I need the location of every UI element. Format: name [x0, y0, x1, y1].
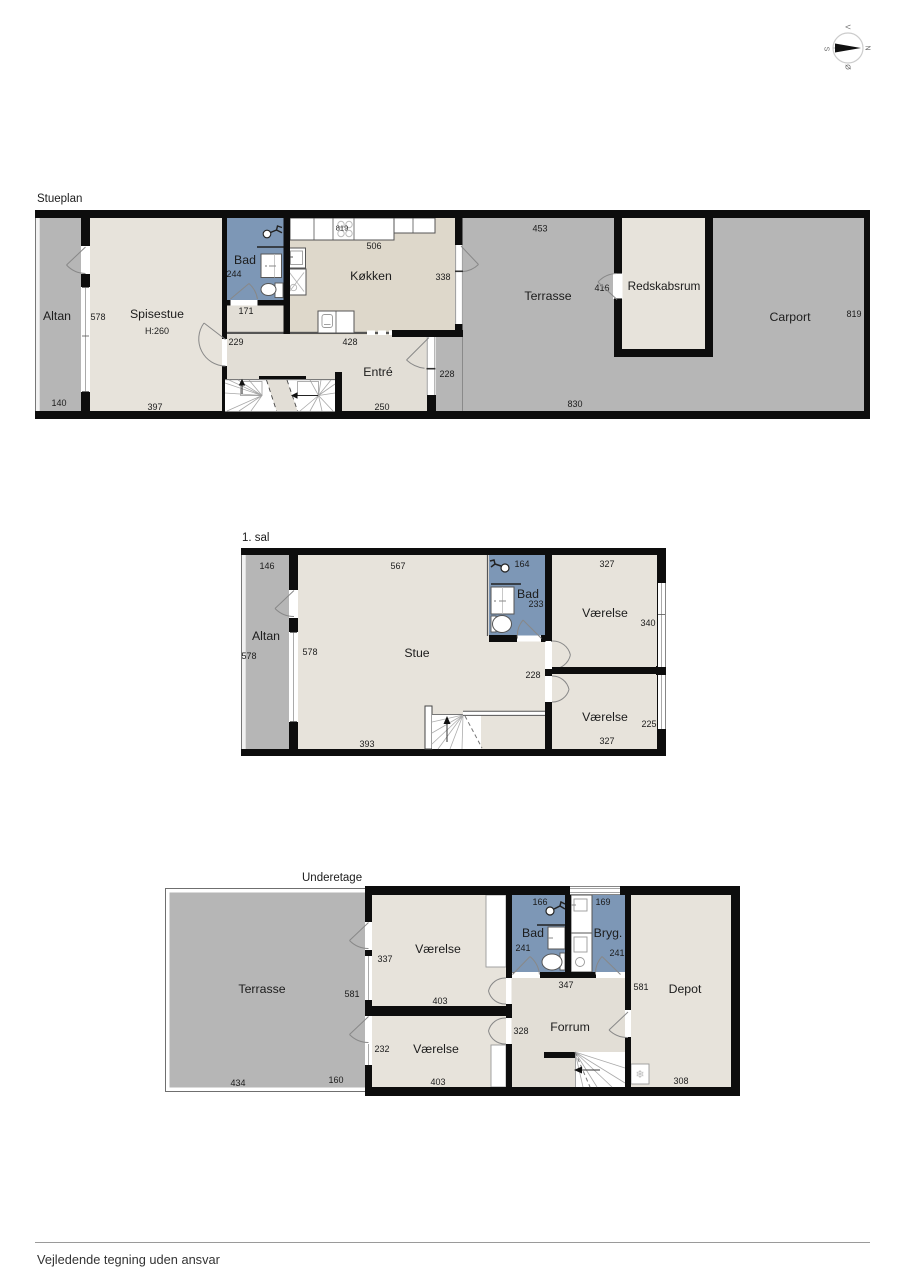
svg-text:393: 393: [359, 739, 374, 749]
svg-text:Bad: Bad: [522, 926, 544, 940]
svg-text:169: 169: [595, 897, 610, 907]
svg-text:146: 146: [259, 561, 274, 571]
svg-text:Depot: Depot: [669, 982, 702, 996]
svg-text:140: 140: [51, 398, 66, 408]
svg-text:N: N: [864, 45, 871, 50]
svg-text:228: 228: [525, 670, 540, 680]
svg-text:327: 327: [599, 559, 614, 569]
svg-text:Værelse: Værelse: [582, 606, 628, 620]
svg-text:171: 171: [238, 306, 253, 316]
svg-text:228: 228: [439, 369, 454, 379]
svg-text:S: S: [823, 47, 830, 52]
svg-text:Stue: Stue: [404, 646, 429, 660]
svg-text:Værelse: Værelse: [413, 1042, 459, 1056]
svg-text:578: 578: [90, 312, 105, 322]
svg-text:403: 403: [432, 996, 447, 1006]
svg-text:V: V: [844, 25, 851, 30]
svg-text:Ø: Ø: [844, 64, 851, 70]
svg-text:Terrasse: Terrasse: [238, 982, 285, 996]
svg-text:241: 241: [609, 948, 624, 958]
svg-text:397: 397: [147, 402, 162, 412]
svg-text:830: 830: [567, 399, 582, 409]
svg-text:H:260: H:260: [145, 326, 169, 336]
svg-text:166: 166: [532, 897, 547, 907]
svg-text:Spisestue: Spisestue: [130, 307, 184, 321]
svg-text:Entré: Entré: [363, 365, 393, 379]
svg-text:581: 581: [633, 982, 648, 992]
svg-text:453: 453: [532, 224, 547, 234]
svg-text:Altan: Altan: [43, 309, 71, 323]
svg-text:232: 232: [374, 1044, 389, 1054]
svg-text:578: 578: [241, 651, 256, 661]
svg-text:225: 225: [641, 719, 656, 729]
svg-text:229: 229: [228, 337, 243, 347]
svg-text:428: 428: [342, 337, 357, 347]
svg-text:340: 340: [640, 618, 655, 628]
svg-text:Altan: Altan: [252, 629, 280, 643]
svg-text:Stueplan: Stueplan: [37, 193, 82, 205]
svg-text:Køkken: Køkken: [350, 269, 392, 283]
svg-text:Redskabsrum: Redskabsrum: [628, 279, 701, 293]
svg-text:819: 819: [336, 224, 349, 233]
svg-text:Carport: Carport: [769, 310, 811, 324]
svg-text:Værelse: Værelse: [415, 942, 461, 956]
svg-text:819: 819: [846, 309, 861, 319]
svg-text:241: 241: [515, 943, 530, 953]
svg-text:244: 244: [226, 269, 241, 279]
svg-text:Terrasse: Terrasse: [524, 289, 571, 303]
svg-text:578: 578: [302, 647, 317, 657]
svg-text:250: 250: [374, 402, 389, 412]
svg-text:567: 567: [390, 561, 405, 571]
svg-text:308: 308: [673, 1076, 688, 1086]
svg-text:434: 434: [230, 1078, 245, 1088]
svg-text:347: 347: [558, 980, 573, 990]
svg-text:581: 581: [344, 989, 359, 999]
svg-text:1. sal: 1. sal: [242, 532, 270, 544]
svg-text:❄: ❄: [635, 1069, 644, 1081]
svg-text:Værelse: Værelse: [582, 710, 628, 724]
svg-text:338: 338: [435, 272, 450, 282]
svg-text:160: 160: [328, 1075, 343, 1085]
svg-text:Bad: Bad: [234, 253, 256, 267]
svg-text:506: 506: [366, 241, 381, 251]
svg-text:233: 233: [528, 599, 543, 609]
svg-text:Bryg.: Bryg.: [594, 926, 623, 940]
svg-text:403: 403: [430, 1077, 445, 1087]
svg-text:Underetage: Underetage: [302, 872, 362, 884]
svg-text:164: 164: [514, 559, 529, 569]
svg-text:Forrum: Forrum: [550, 1020, 590, 1034]
svg-text:Vejledende tegning uden ansvar: Vejledende tegning uden ansvar: [37, 1252, 221, 1267]
svg-text:416: 416: [594, 283, 609, 293]
svg-text:328: 328: [513, 1026, 528, 1036]
svg-text:337: 337: [377, 954, 392, 964]
svg-text:327: 327: [599, 736, 614, 746]
